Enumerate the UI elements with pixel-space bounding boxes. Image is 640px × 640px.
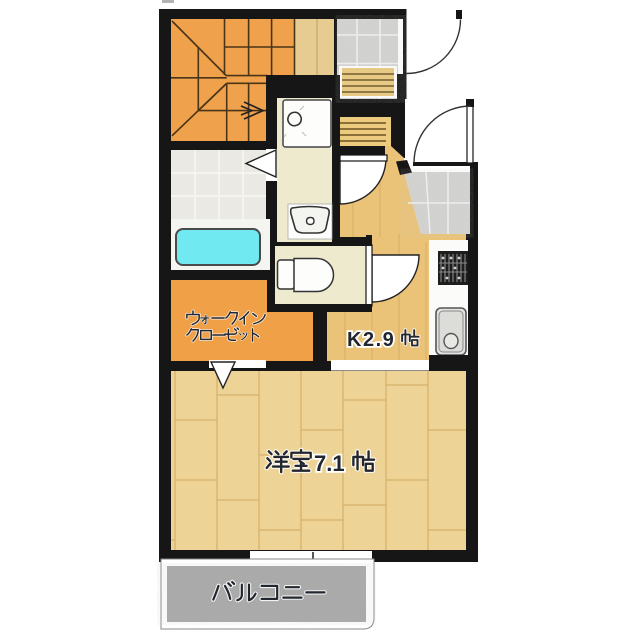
svg-text:7.1: 7.1 bbox=[314, 451, 345, 476]
svg-text:K2.9: K2.9 bbox=[347, 329, 395, 351]
